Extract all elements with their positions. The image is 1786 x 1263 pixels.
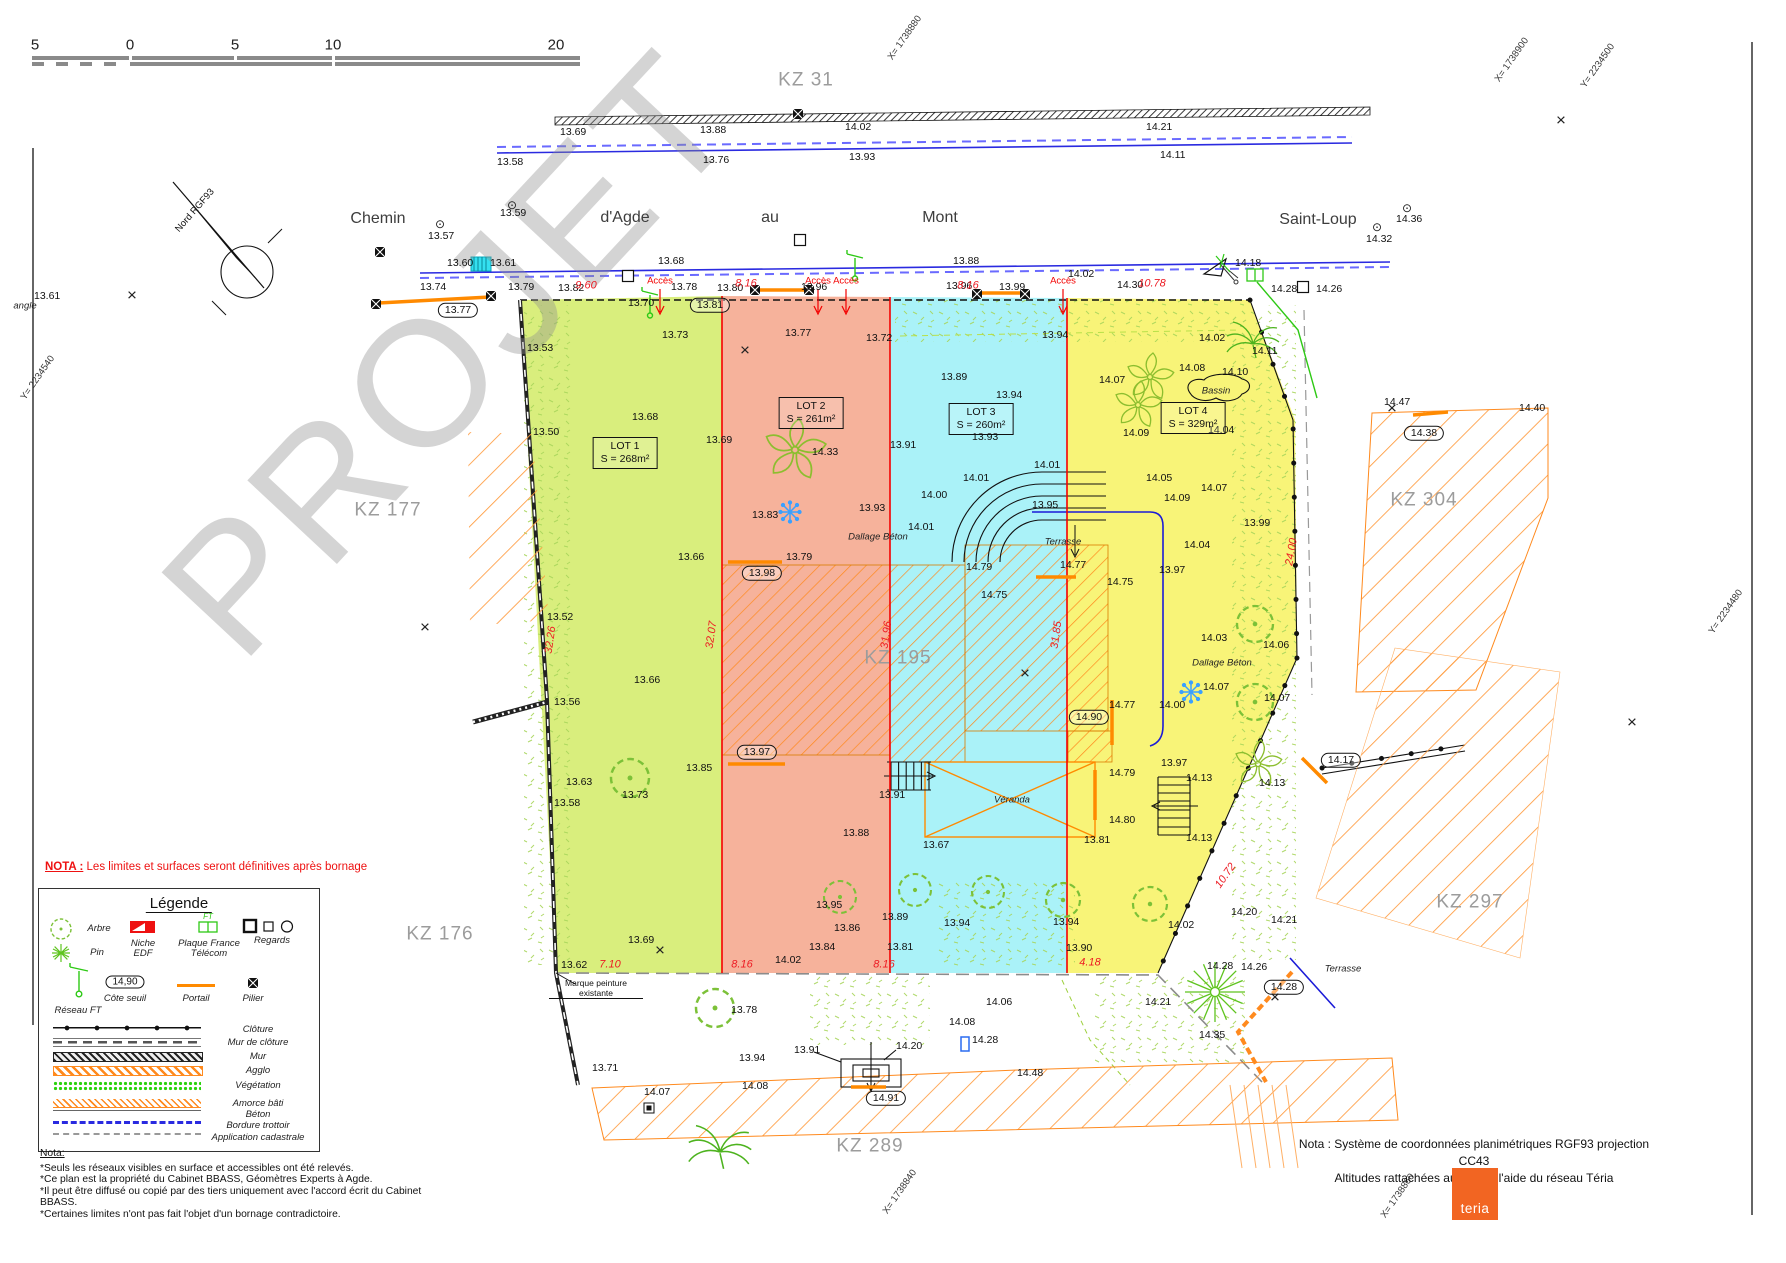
lot-box-3: LOT 3S = 260m² (949, 403, 1014, 435)
spot-elevation: 13.89 (941, 372, 967, 383)
dimension-value: 9.60 (575, 281, 596, 292)
spot-elevation: 13.85 (686, 763, 712, 774)
spot-elevation: 13.79 (786, 552, 812, 563)
spot-elevation: 14.26 (1316, 284, 1342, 295)
legend-label-arbre: Arbre (87, 924, 110, 934)
svg-text:FT: FT (203, 912, 214, 921)
survey-point: ⊙ (1402, 202, 1412, 214)
amorce-line-sample (53, 1099, 201, 1108)
spot-elevation: 13.50 (533, 427, 559, 438)
spot-elevation: 13.71 (592, 1063, 618, 1074)
scale-tick-label: 0 (126, 38, 134, 53)
spot-elevation: 13.57 (428, 231, 454, 242)
spot-elevation: 14.01 (1034, 460, 1060, 471)
spot-elevation: 13.58 (497, 157, 523, 168)
spot-elevation: 13.63 (566, 777, 592, 788)
spot-elevation: 13.84 (809, 942, 835, 953)
spot-elevation: 14.80 (1109, 815, 1135, 826)
bordure-line-sample (53, 1121, 201, 1124)
nota-banner-text: Les limites et surfaces seront définitiv… (87, 861, 368, 873)
survey-plan-page: PROJET 13.6913.8814.0214.2113.5813.7613.… (0, 0, 1786, 1263)
spot-elevation: 13.93 (849, 152, 875, 163)
legend-line-mur: Mur (53, 1052, 308, 1064)
spot-elevation: 14.75 (1107, 577, 1133, 588)
spot-elevation: 14.13 (1186, 773, 1212, 784)
grid-cross: × (127, 287, 137, 304)
parcel-number: KZ 177 (354, 501, 421, 520)
spot-elevation: 13.95 (1032, 500, 1058, 511)
spot-elevation: 14.28 (972, 1035, 998, 1046)
street-name: d'Agde (600, 210, 649, 226)
spot-elevation: 14.02 (1199, 333, 1225, 344)
legend-line-label: Végétation (235, 1081, 280, 1091)
cote-seuil-value: 13.81 (690, 298, 730, 313)
spot-elevation: 14.01 (963, 473, 989, 484)
spot-elevation: 13.91 (794, 1045, 820, 1056)
parcel-number: KZ 195 (864, 649, 931, 668)
spot-elevation: 14.21 (1146, 122, 1172, 133)
spot-elevation: 13.77 (785, 328, 811, 339)
spot-elevation: 13.99 (1244, 518, 1270, 529)
lot-name: LOT 1 (601, 440, 650, 453)
spot-elevation: 13.56 (554, 697, 580, 708)
beton-line-sample (53, 1110, 201, 1111)
nota-banner-label: NOTA : (45, 861, 83, 873)
spot-elevation: 14.20 (896, 1041, 922, 1052)
spot-elevation: 13.86 (834, 923, 860, 934)
legend-line-label: Clôture (243, 1025, 274, 1035)
scale-tick-label: 20 (548, 38, 565, 53)
spot-elevation: 14.20 (1231, 907, 1257, 918)
nota-left: Nota: *Seuls les réseaux visibles en sur… (40, 1148, 460, 1220)
dimension-value: 8.16 (957, 281, 978, 292)
spot-elevation: 14.77 (1109, 700, 1135, 711)
survey-point: ⊙ (435, 218, 445, 230)
spot-elevation: 14.00 (921, 490, 947, 501)
grid-coordinate: X= 1738900 (1493, 36, 1530, 84)
spot-elevation: 14.02 (775, 955, 801, 966)
spot-elevation: 13.70 (628, 298, 654, 309)
dimension-value: 8.16 (735, 279, 756, 290)
dimension-value: 31.96 (880, 621, 895, 650)
parcel-number: KZ 31 (778, 71, 834, 90)
lot-name: LOT 2 (787, 400, 836, 413)
spot-elevation: 13.69 (628, 935, 654, 946)
spot-elevation: 13.88 (953, 256, 979, 267)
spot-elevation: 14.07 (1264, 693, 1290, 704)
grid-cross: × (1270, 989, 1280, 1006)
spot-elevation: 14.11 (1252, 346, 1278, 357)
spot-elevation: 13.76 (703, 155, 729, 166)
acces-label: Accès (833, 276, 859, 286)
spot-elevation: 14.06 (1263, 640, 1289, 651)
feature-label: Terrasse (1045, 537, 1082, 547)
spot-elevation: 13.94 (1042, 330, 1068, 341)
feature-label: Dallage Béton (1192, 658, 1252, 668)
spot-elevation: 14.77 (1060, 560, 1086, 571)
spot-elevation: 14.36 (1396, 214, 1422, 225)
grid-cross: × (1627, 714, 1637, 731)
pine-icon (49, 941, 73, 965)
spot-elevation: 13.94 (1053, 917, 1079, 928)
nota-right-line: Nota : Système de coordonnées planimétri… (1296, 1136, 1652, 1170)
spot-elevation: 13.61 (490, 258, 516, 269)
spot-elevation: 14.26 (1241, 962, 1267, 973)
agglo-line-sample (53, 1066, 203, 1076)
spot-elevation: 14.75 (981, 590, 1007, 601)
murcloture-line-sample (53, 1038, 201, 1047)
parcel-number: KZ 304 (1390, 491, 1457, 510)
spot-elevation: 13.97 (1159, 565, 1185, 576)
lot-area: S = 329m² (1169, 418, 1218, 431)
acces-label: Accès (1050, 276, 1076, 286)
feature-label: Dallage Béton (848, 532, 908, 542)
lot-area: S = 268m² (601, 453, 650, 466)
legend-line-murcloture: Mur de clôture (53, 1038, 308, 1050)
parcel-number: KZ 289 (836, 1137, 903, 1156)
tree-icon (47, 915, 75, 943)
spot-elevation: 14.00 (1159, 700, 1185, 711)
legend-label-plaque: Plaque France Télécom (171, 939, 247, 959)
spot-elevation: 14.11 (1160, 150, 1186, 161)
spot-elevation: 13.99 (999, 282, 1025, 293)
spot-elevation: 13.91 (890, 440, 916, 451)
spot-elevation: 13.61 (34, 291, 60, 302)
spot-elevation: 13.66 (678, 552, 704, 563)
parcel-number: KZ 297 (1436, 893, 1503, 912)
teria-logo: teria (1452, 1168, 1498, 1220)
spot-elevation: 13.66 (634, 675, 660, 686)
nota-left-title: Nota: (40, 1148, 460, 1160)
grid-cross: × (655, 942, 665, 959)
spot-elevation: 14.07 (1203, 682, 1229, 693)
spot-elevation: 14.13 (1186, 833, 1212, 844)
nota-left-line: *Il peut être diffusé ou copié par des t… (40, 1186, 460, 1209)
spot-elevation: 14.18 (1235, 258, 1261, 269)
spot-elevation: 14.09 (1164, 493, 1190, 504)
spot-elevation: 13.68 (632, 412, 658, 423)
spot-elevation: 13.62 (561, 960, 587, 971)
dimension-value: 24.00 (1284, 537, 1300, 566)
spot-elevation: 14.06 (986, 997, 1012, 1008)
legend-line-label: Application cadastrale (212, 1133, 305, 1143)
spot-elevation: 14.03 (1201, 633, 1227, 644)
cadastrale-line-sample (53, 1133, 201, 1135)
survey-point: ⊙ (507, 199, 517, 211)
lot-box-1: LOT 1S = 268m² (593, 437, 658, 469)
grid-coordinate: X= 1738880 (886, 14, 923, 62)
legend-label-pilier: Pilier (242, 994, 263, 1004)
legend-line-cloture: Clôture (53, 1025, 308, 1037)
cloture-line-sample (53, 1025, 201, 1031)
spot-elevation: 13.94 (996, 390, 1022, 401)
spot-elevation: 14.21 (1145, 997, 1171, 1008)
vegetation-line-sample (53, 1081, 201, 1091)
dimension-value: 8.16 (873, 960, 894, 971)
spot-elevation: 14.02 (845, 122, 871, 133)
lot-area: S = 261m² (787, 413, 836, 426)
reseau-ft-icon (61, 963, 97, 1003)
lot-name: LOT 3 (957, 406, 1006, 419)
spot-elevation: 13.69 (560, 127, 586, 138)
legend-line-cadastrale: Application cadastrale (53, 1133, 308, 1145)
street-name: Saint-Loup (1279, 212, 1356, 228)
nota-left-line: *Ce plan est la propriété du Cabinet BBA… (40, 1174, 460, 1186)
dimension-value: 7.10 (599, 960, 620, 971)
spot-elevation: 13.94 (739, 1053, 765, 1064)
nota-banner: NOTA : Les limites et surfaces seront dé… (45, 861, 367, 873)
legend-line-label: Mur (250, 1052, 266, 1062)
grid-coordinate: Y= 2234480 (1707, 588, 1744, 636)
spot-elevation: 13.95 (816, 900, 842, 911)
spot-elevation: 14.28 (1207, 961, 1233, 972)
spot-elevation: 13.78 (731, 1005, 757, 1016)
spot-elevation: 14.07 (644, 1087, 670, 1098)
cote-seuil-value: 14.17 (1321, 753, 1361, 768)
spot-elevation: 13.67 (923, 840, 949, 851)
spot-elevation: 13.90 (1066, 943, 1092, 954)
cote-seuil-value: 14.90 (1069, 710, 1109, 725)
feature-label: angle (13, 301, 36, 311)
lot-box-4: LOT 4S = 329m² (1161, 402, 1226, 434)
grid-cross: × (1556, 112, 1566, 129)
dimension-value: 10.78 (1138, 279, 1166, 290)
dimension-value: 10.72 (1214, 862, 1239, 891)
cote-seuil-value: 13.97 (737, 745, 777, 760)
plaque-ft-icon: FT (192, 911, 224, 939)
legend-line-label: Bordure trottoir (226, 1121, 289, 1131)
teria-logo-text: teria (1461, 1201, 1490, 1216)
grid-cross: × (1387, 400, 1397, 417)
parcel-number: KZ 176 (406, 925, 473, 944)
survey-point: ⊙ (1372, 221, 1382, 233)
spot-elevation: 13.53 (527, 343, 553, 354)
grid-coordinate: Y= 2234500 (1579, 42, 1616, 90)
spot-elevation: 13.69 (706, 435, 732, 446)
grid-coordinate: X= 1738840 (881, 1168, 918, 1216)
spot-elevation: 13.60 (447, 258, 473, 269)
spot-elevation: 14.79 (1109, 768, 1135, 779)
legend-label-cote: Côte seuil (104, 994, 146, 1004)
feature-label: Bassin (1202, 386, 1231, 396)
legend-line-agglo: Agglo (53, 1066, 308, 1078)
dimension-value: 32.07 (705, 621, 720, 650)
street-name: Chemin (350, 211, 405, 227)
spot-elevation: 13.58 (554, 798, 580, 809)
scale-tick-label: 5 (231, 38, 239, 53)
dimension-value: 31.85 (1050, 621, 1065, 650)
spot-elevation: 14.04 (1184, 540, 1210, 551)
spot-elevation: 14.28 (1271, 284, 1297, 295)
spot-elevation: 14.33 (812, 447, 838, 458)
spot-elevation: 13.72 (866, 333, 892, 344)
spot-elevation: 13.81 (1084, 835, 1110, 846)
spot-elevation: 13.73 (622, 790, 648, 801)
spot-elevation: 14.40 (1519, 403, 1545, 414)
scale-tick-label: 10 (325, 38, 342, 53)
lot-area: S = 260m² (957, 419, 1006, 432)
spot-elevation: 13.52 (547, 612, 573, 623)
cote-seuil-value: 13.98 (742, 566, 782, 581)
spot-elevation: 14.08 (949, 1017, 975, 1028)
spot-elevation: 13.97 (1161, 758, 1187, 769)
spot-elevation: 13.68 (658, 256, 684, 267)
spot-elevation: 14.79 (966, 562, 992, 573)
legend-box: Légende Arbre Pin Niche EDF FT Plaque Fr… (38, 888, 320, 1152)
nota-left-line: *Seuls les réseaux visibles en surface e… (40, 1163, 460, 1175)
feature-label: Véranda (994, 795, 1030, 805)
spot-elevation: 14.09 (1123, 428, 1149, 439)
cote-seuil-value: 14.38 (1404, 426, 1444, 441)
pilier-icon (245, 975, 261, 991)
grid-coordinate: Y= 2234540 (19, 354, 56, 402)
legend-label-pin: Pin (90, 948, 104, 958)
regards-icon (242, 917, 302, 935)
spot-elevation: 14.08 (742, 1081, 768, 1092)
spot-elevation: 13.91 (879, 790, 905, 801)
spot-elevation: 13.73 (662, 330, 688, 341)
spot-elevation: 13.89 (882, 912, 908, 923)
legend-line-vegetation: Végétation (53, 1081, 308, 1093)
spot-elevation: 14.48 (1017, 1068, 1043, 1079)
dimension-value: 4.18 (1079, 958, 1100, 969)
scale-tick-label: 5 (31, 38, 39, 53)
spot-elevation: 14.10 (1222, 367, 1248, 378)
spot-elevation: 13.81 (887, 942, 913, 953)
mur-line-sample (53, 1052, 203, 1062)
nota-left-line: *Certaines limites n'ont pas fait l'obje… (40, 1209, 460, 1221)
acces-label: Accès (647, 276, 673, 286)
niche-edf-icon (129, 919, 157, 935)
spot-elevation: 14.13 (1259, 778, 1285, 789)
legend-label-portail: Portail (183, 994, 210, 1004)
spot-elevation: 14.01 (908, 522, 934, 533)
cote-seuil-value: 13.77 (438, 303, 478, 318)
legend-label-regards: Regards (254, 936, 290, 946)
spot-elevation: 13.88 (843, 828, 869, 839)
spot-elevation: 14.21 (1271, 915, 1297, 926)
spot-elevation: 14.35 (1199, 1030, 1225, 1041)
lot-name: LOT 4 (1169, 405, 1218, 418)
marque-peinture-label: Marque peinture existante (549, 978, 643, 999)
spot-elevation: 14.32 (1366, 234, 1392, 245)
spot-elevation: 13.79 (508, 282, 534, 293)
spot-elevation: 13.88 (700, 125, 726, 136)
spot-elevation: 13.83 (752, 510, 778, 521)
legend-line-label: Mur de clôture (228, 1038, 289, 1048)
street-name: Mont (922, 210, 958, 226)
portail-sample (177, 984, 215, 987)
cote-seuil-value: 14.91 (866, 1091, 906, 1106)
spot-elevation: 13.93 (859, 503, 885, 514)
acces-label: Accès (805, 276, 831, 286)
dimension-value: 8.16 (731, 960, 752, 971)
spot-elevation: 14.05 (1146, 473, 1172, 484)
spot-elevation: 14.02 (1168, 920, 1194, 931)
legend-label-reseau: Réseau FT (53, 1006, 103, 1016)
legend-line-label: Agglo (246, 1066, 270, 1076)
grid-cross: × (1020, 665, 1030, 682)
spot-elevation: 14.07 (1099, 375, 1125, 386)
spot-elevation: 13.78 (671, 282, 697, 293)
lot-box-2: LOT 2S = 261m² (779, 397, 844, 429)
legend-label-niche: Niche EDF (121, 939, 165, 959)
grid-cross: × (740, 342, 750, 359)
legend-line-label: Béton (246, 1110, 271, 1120)
spot-elevation: 14.07 (1201, 483, 1227, 494)
legend-line-label: Amorce bâti (233, 1099, 284, 1109)
spot-elevation: 13.74 (420, 282, 446, 293)
dimension-value: 32.26 (544, 626, 559, 655)
feature-label: Terrasse (1325, 964, 1362, 974)
grid-cross: × (420, 619, 430, 636)
spot-elevation: 13.94 (944, 918, 970, 929)
street-name: au (761, 210, 779, 226)
cote-seuil-sample: 14,90 (105, 976, 144, 989)
spot-elevation: 14.08 (1179, 363, 1205, 374)
